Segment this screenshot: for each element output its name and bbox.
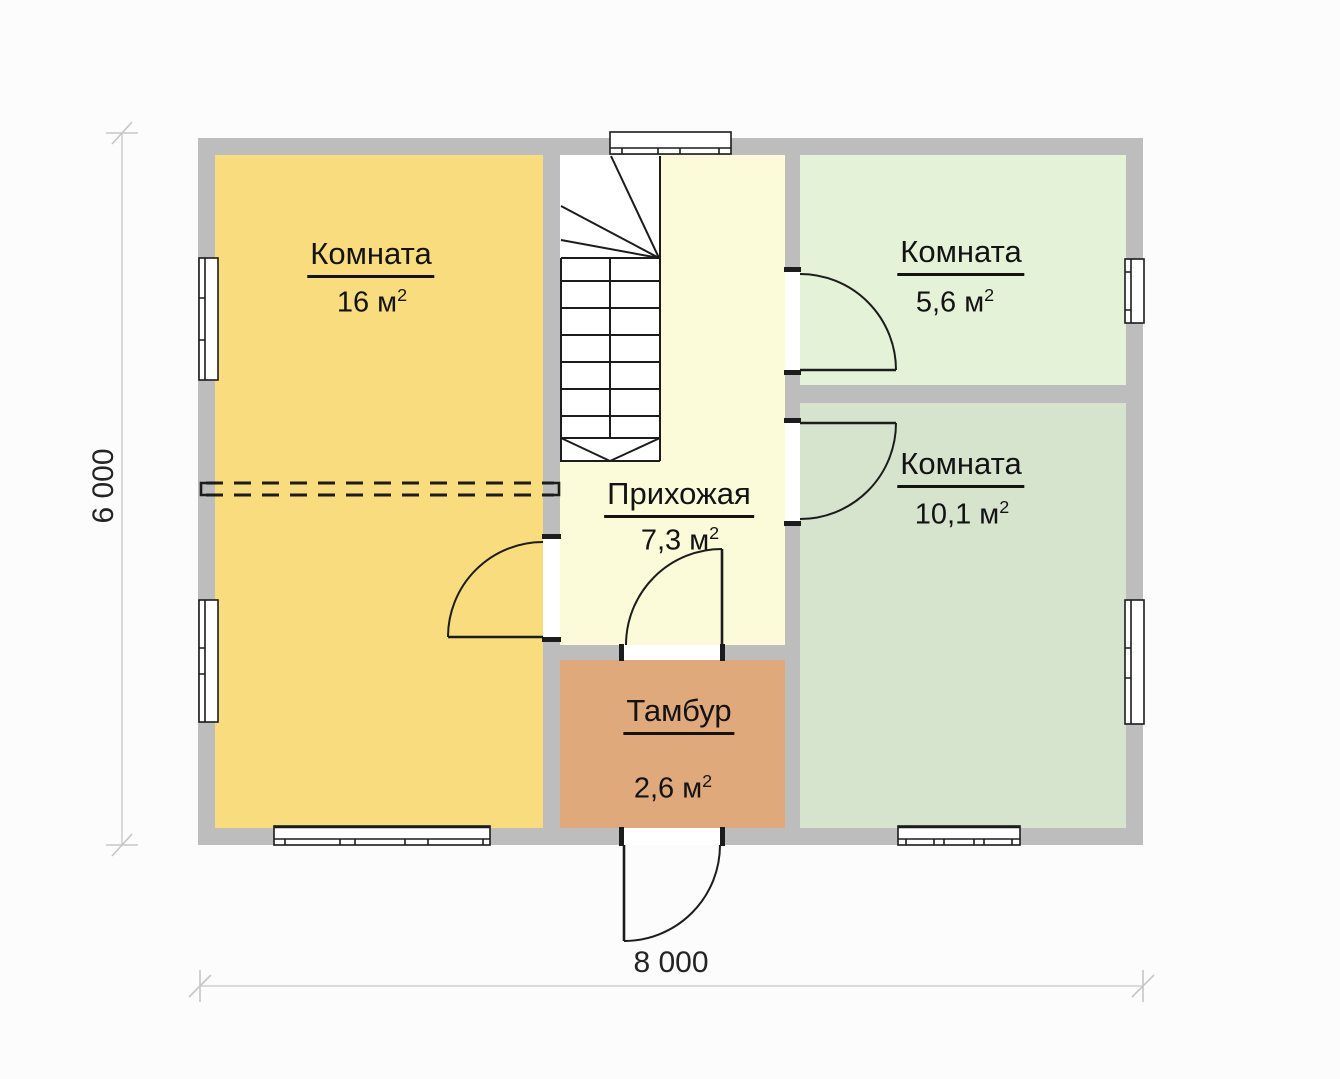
superscript-2: 2 (397, 285, 407, 305)
room-101-name-text: Комната (897, 447, 1024, 488)
room-56-area: 5,6 м2 (916, 286, 994, 320)
tambour-name-text: Тамбур (623, 694, 734, 735)
room-56-name: Комната (897, 235, 1024, 276)
window-left-upper (199, 258, 218, 380)
window-right-upper (1125, 259, 1144, 323)
hallway-name-text: Прихожая (604, 477, 754, 518)
floor-plan-canvas: Комната 16 м2 Комната 5,6 м2 Комната 10,… (0, 0, 1340, 1079)
superscript-2: 2 (999, 497, 1009, 517)
tambour-area: 2,6 м2 (634, 772, 712, 806)
window-bottom-left (274, 826, 490, 845)
window-left-lower (199, 600, 218, 722)
hallway-area: 7,3 м2 (641, 524, 719, 558)
superscript-2: 2 (702, 771, 712, 791)
room-101-area: 10,1 м2 (915, 498, 1009, 532)
window-right-lower (1125, 600, 1144, 724)
room-56-name-text: Комната (897, 235, 1024, 276)
room-16-name-text: Комната (307, 237, 434, 278)
room-16-name: Комната (307, 237, 434, 278)
room-101-name: Комната (897, 447, 1024, 488)
dimension-width-label: 8 000 (633, 946, 708, 980)
room-16-area: 16 м2 (337, 286, 407, 320)
superscript-2: 2 (709, 523, 719, 543)
door-entrance (624, 845, 720, 941)
window-bottom-right (898, 826, 1020, 845)
dimension-height-label: 6 000 (87, 448, 121, 523)
superscript-2: 2 (984, 285, 994, 305)
tambour-name: Тамбур (623, 694, 734, 735)
window-top (610, 132, 731, 154)
hallway-name: Прихожая (604, 477, 754, 518)
